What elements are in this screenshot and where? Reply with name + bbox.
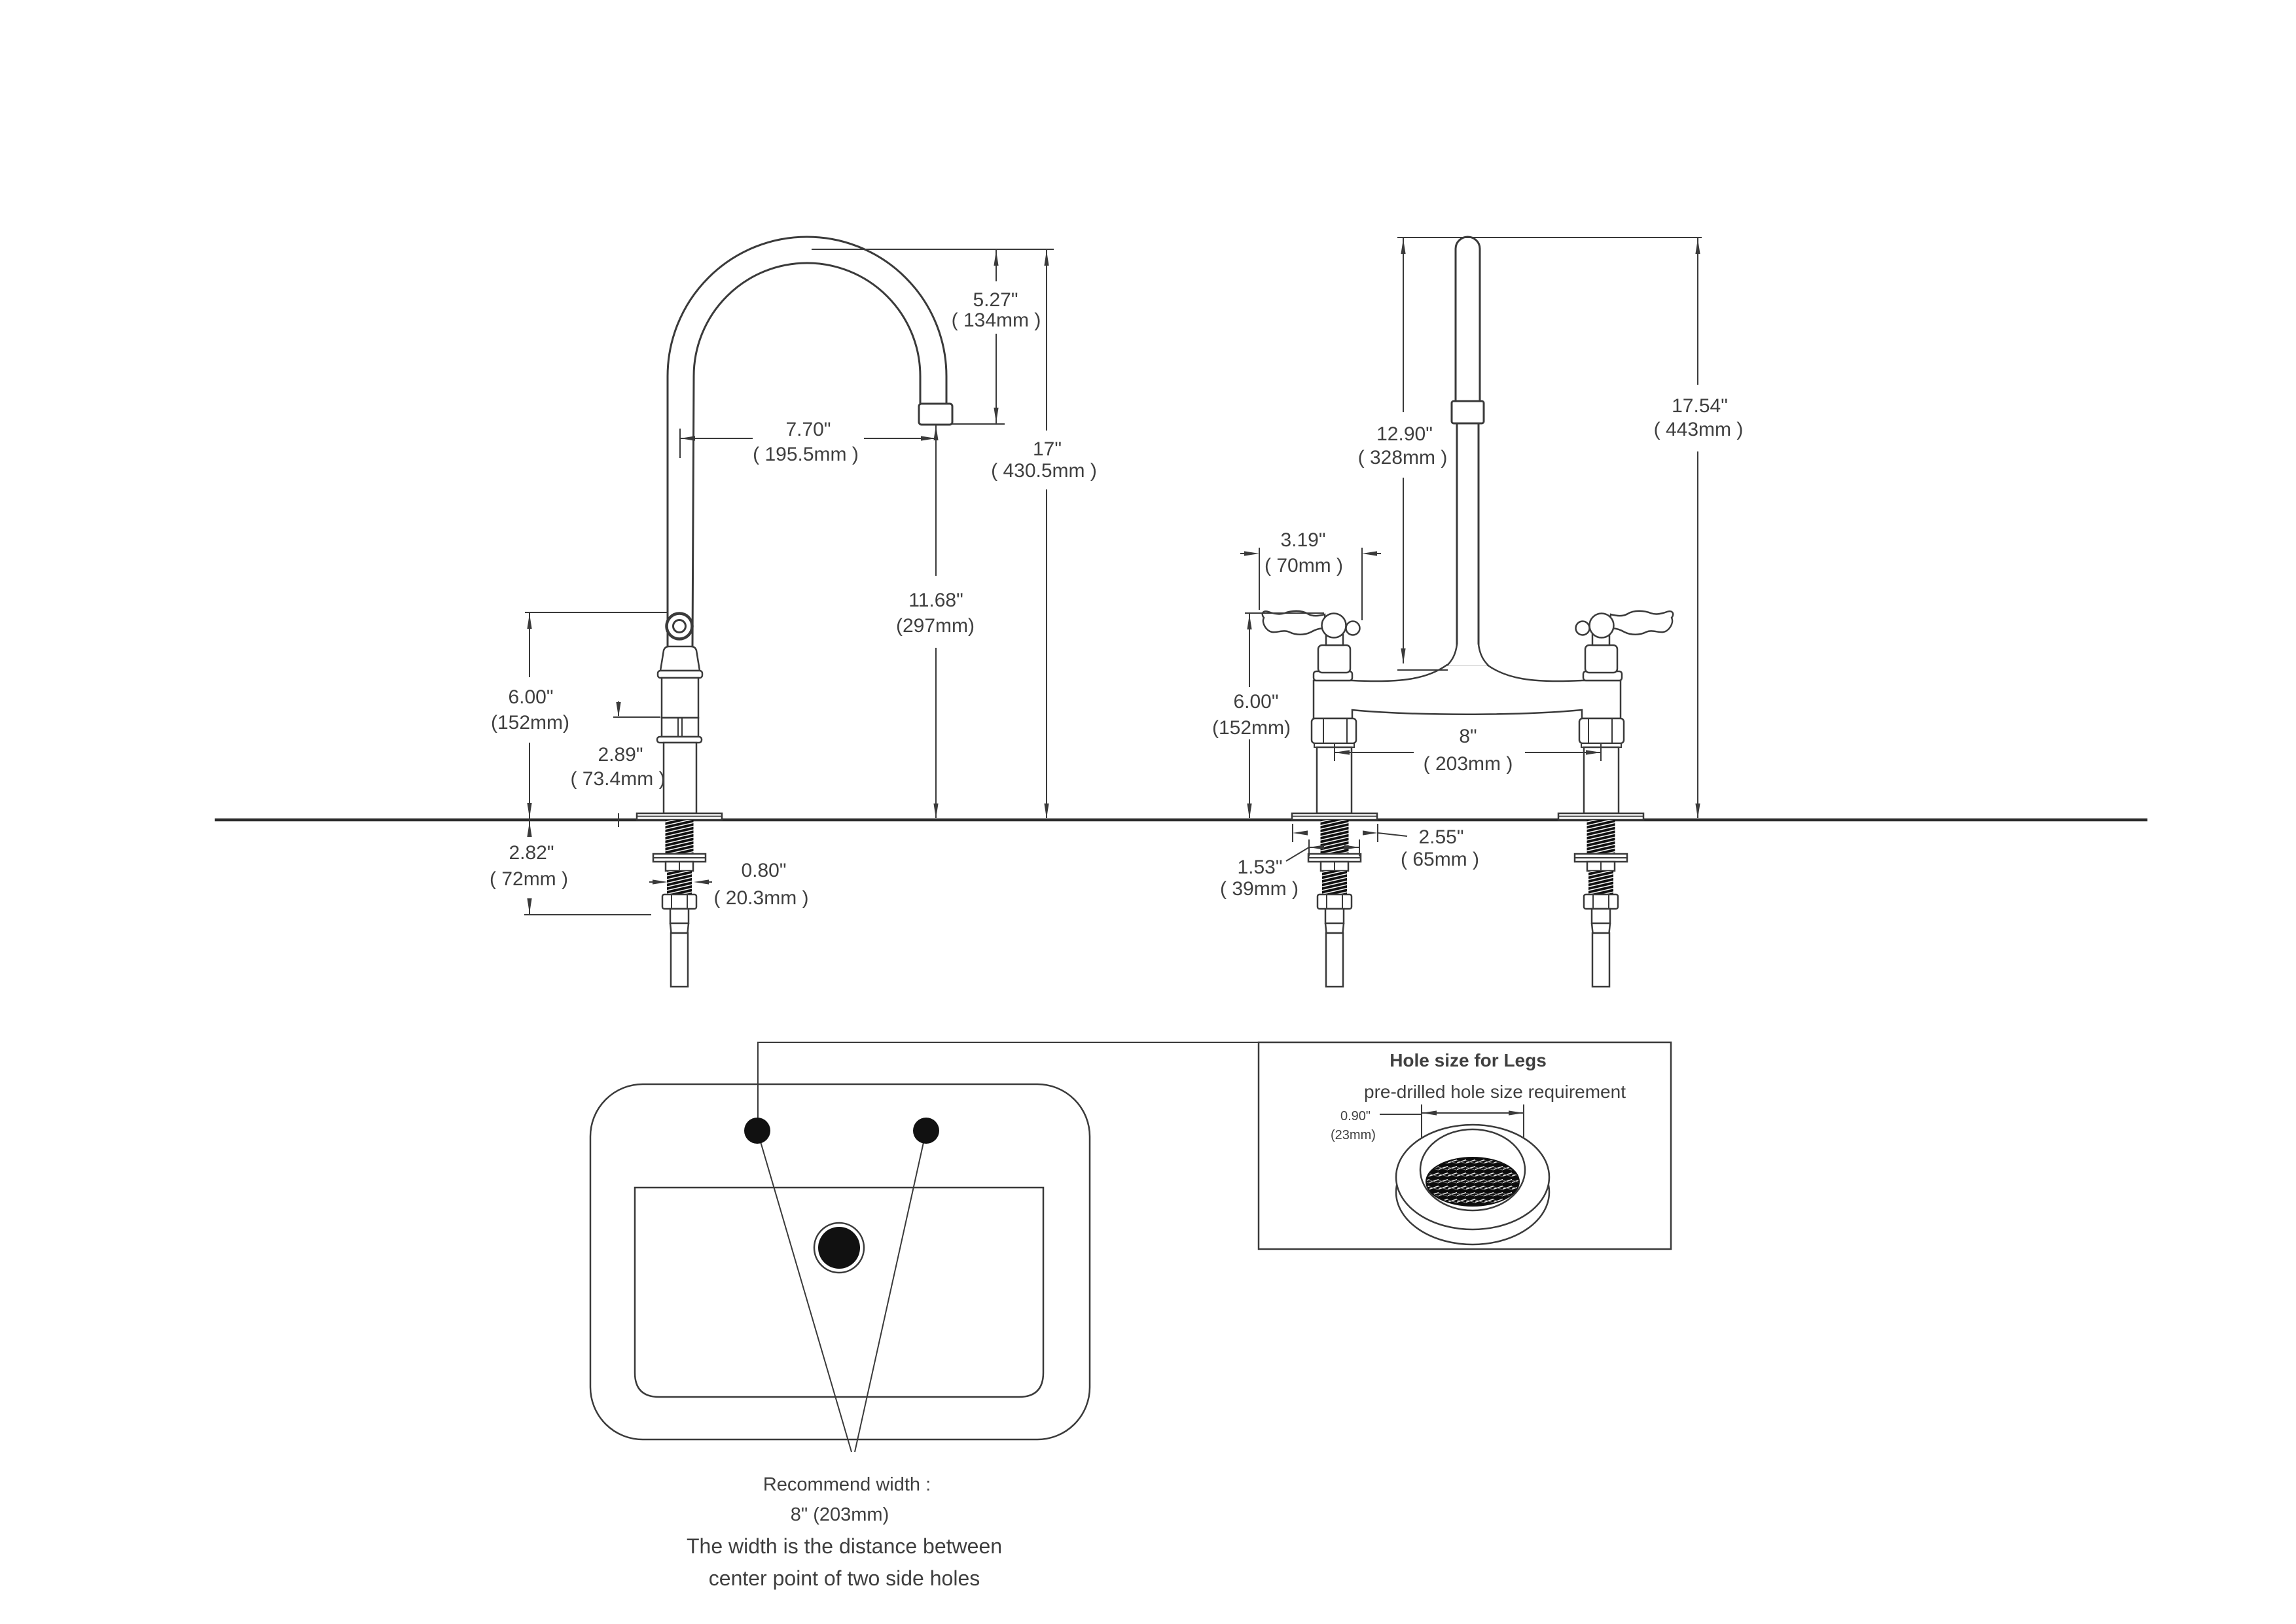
svg-text:( 70mm ): ( 70mm ) bbox=[1265, 555, 1343, 576]
svg-text:17.54": 17.54" bbox=[1672, 395, 1728, 417]
svg-text:12.90": 12.90" bbox=[1376, 423, 1433, 445]
svg-text:0.80": 0.80" bbox=[741, 860, 786, 881]
svg-text:(152mm): (152mm) bbox=[491, 712, 569, 733]
svg-text:( 328mm ): ( 328mm ) bbox=[1358, 447, 1448, 468]
svg-text:( 39mm ): ( 39mm ) bbox=[1220, 878, 1299, 900]
svg-text:11.68": 11.68" bbox=[908, 590, 963, 611]
svg-text:8" (203mm): 8" (203mm) bbox=[791, 1504, 889, 1525]
svg-text:(297mm): (297mm) bbox=[896, 615, 975, 637]
svg-text:The width is the distance betw: The width is the distance between bbox=[687, 1534, 1002, 1558]
svg-text:( 65mm ): ( 65mm ) bbox=[1401, 849, 1479, 870]
svg-text:6.00": 6.00" bbox=[1233, 691, 1278, 713]
svg-text:(152mm): (152mm) bbox=[1212, 717, 1291, 739]
svg-text:(23mm): (23mm) bbox=[1331, 1128, 1376, 1142]
svg-text:( 430.5mm ): ( 430.5mm ) bbox=[991, 460, 1097, 482]
svg-text:17": 17" bbox=[1033, 438, 1062, 460]
svg-text:2.89": 2.89" bbox=[598, 744, 643, 766]
svg-text:Hole size for Legs: Hole size for Legs bbox=[1390, 1050, 1547, 1070]
svg-text:( 134mm ): ( 134mm ) bbox=[952, 309, 1041, 331]
svg-text:( 195.5mm ): ( 195.5mm ) bbox=[753, 444, 859, 465]
svg-text:6.00": 6.00" bbox=[508, 686, 553, 708]
svg-text:0.90": 0.90" bbox=[1340, 1109, 1371, 1123]
svg-text:7.70": 7.70" bbox=[785, 419, 831, 440]
svg-text:pre-drilled hole size requirem: pre-drilled hole size requirement bbox=[1364, 1082, 1626, 1102]
svg-text:Recommend width :: Recommend width : bbox=[763, 1474, 931, 1495]
svg-text:( 443mm ): ( 443mm ) bbox=[1654, 419, 1744, 440]
svg-text:( 20.3mm ): ( 20.3mm ) bbox=[713, 887, 808, 909]
svg-text:2.82": 2.82" bbox=[509, 842, 554, 864]
svg-text:3.19": 3.19" bbox=[1280, 529, 1325, 551]
svg-text:1.53": 1.53" bbox=[1237, 856, 1282, 878]
svg-text:8": 8" bbox=[1459, 726, 1477, 747]
svg-text:( 73.4mm ): ( 73.4mm ) bbox=[570, 768, 665, 790]
svg-text:center point of two side holes: center point of two side holes bbox=[709, 1566, 980, 1590]
svg-text:5.27": 5.27" bbox=[973, 289, 1018, 311]
svg-text:( 72mm ): ( 72mm ) bbox=[490, 868, 568, 890]
svg-text:( 203mm ): ( 203mm ) bbox=[1424, 753, 1513, 775]
svg-text:2.55": 2.55" bbox=[1418, 826, 1463, 848]
